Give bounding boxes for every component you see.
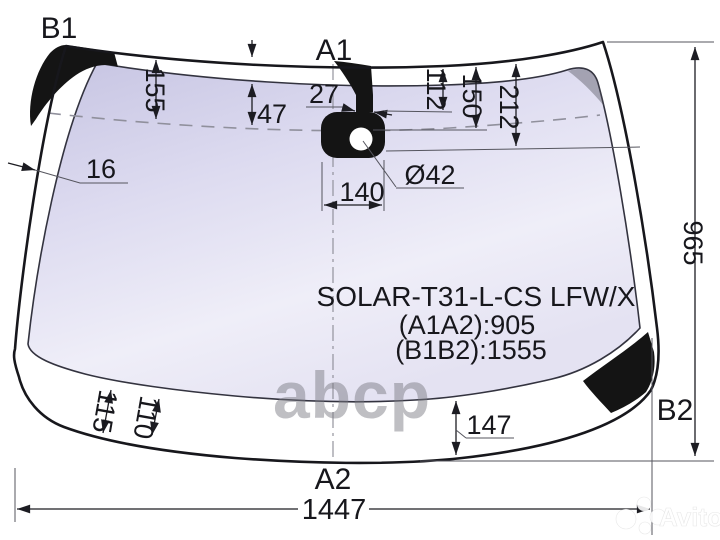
mirror-mount-hole — [350, 128, 373, 151]
dim-150-label: 150 — [457, 73, 487, 118]
point-label-b1: B1 — [41, 12, 78, 45]
dim-16-label: 16 — [86, 154, 116, 184]
part-code: SOLAR-T31-L-CS LFW/X — [317, 281, 636, 312]
dim-155-label: 155 — [140, 67, 170, 112]
dim-27-label: 27 — [309, 79, 339, 109]
dim-212-label: 212 — [494, 84, 524, 129]
dim-112-label: 112 — [421, 67, 451, 110]
point-label-a2: A2 — [315, 463, 352, 496]
dim-hole-diameter-label: Ø42 — [404, 160, 455, 190]
dim-140-label: 140 — [339, 177, 384, 207]
dim-47-label: 47 — [257, 99, 287, 129]
windshield-diagram: B1 A1 A2 B2 155 47 27 112 150 212 16 140… — [0, 0, 720, 540]
point-label-a1: A1 — [316, 34, 353, 67]
abcp-watermark: abcp — [273, 358, 431, 432]
dim-147-label: 147 — [466, 410, 511, 440]
windshield-diagram-image: B1 A1 A2 B2 155 47 27 112 150 212 16 140… — [0, 0, 720, 540]
point-label-b2: B2 — [657, 394, 694, 427]
dim-1447-label: 1447 — [302, 494, 367, 526]
dim-965-label: 965 — [678, 220, 708, 265]
avito-watermark-label: Avito — [659, 502, 720, 532]
